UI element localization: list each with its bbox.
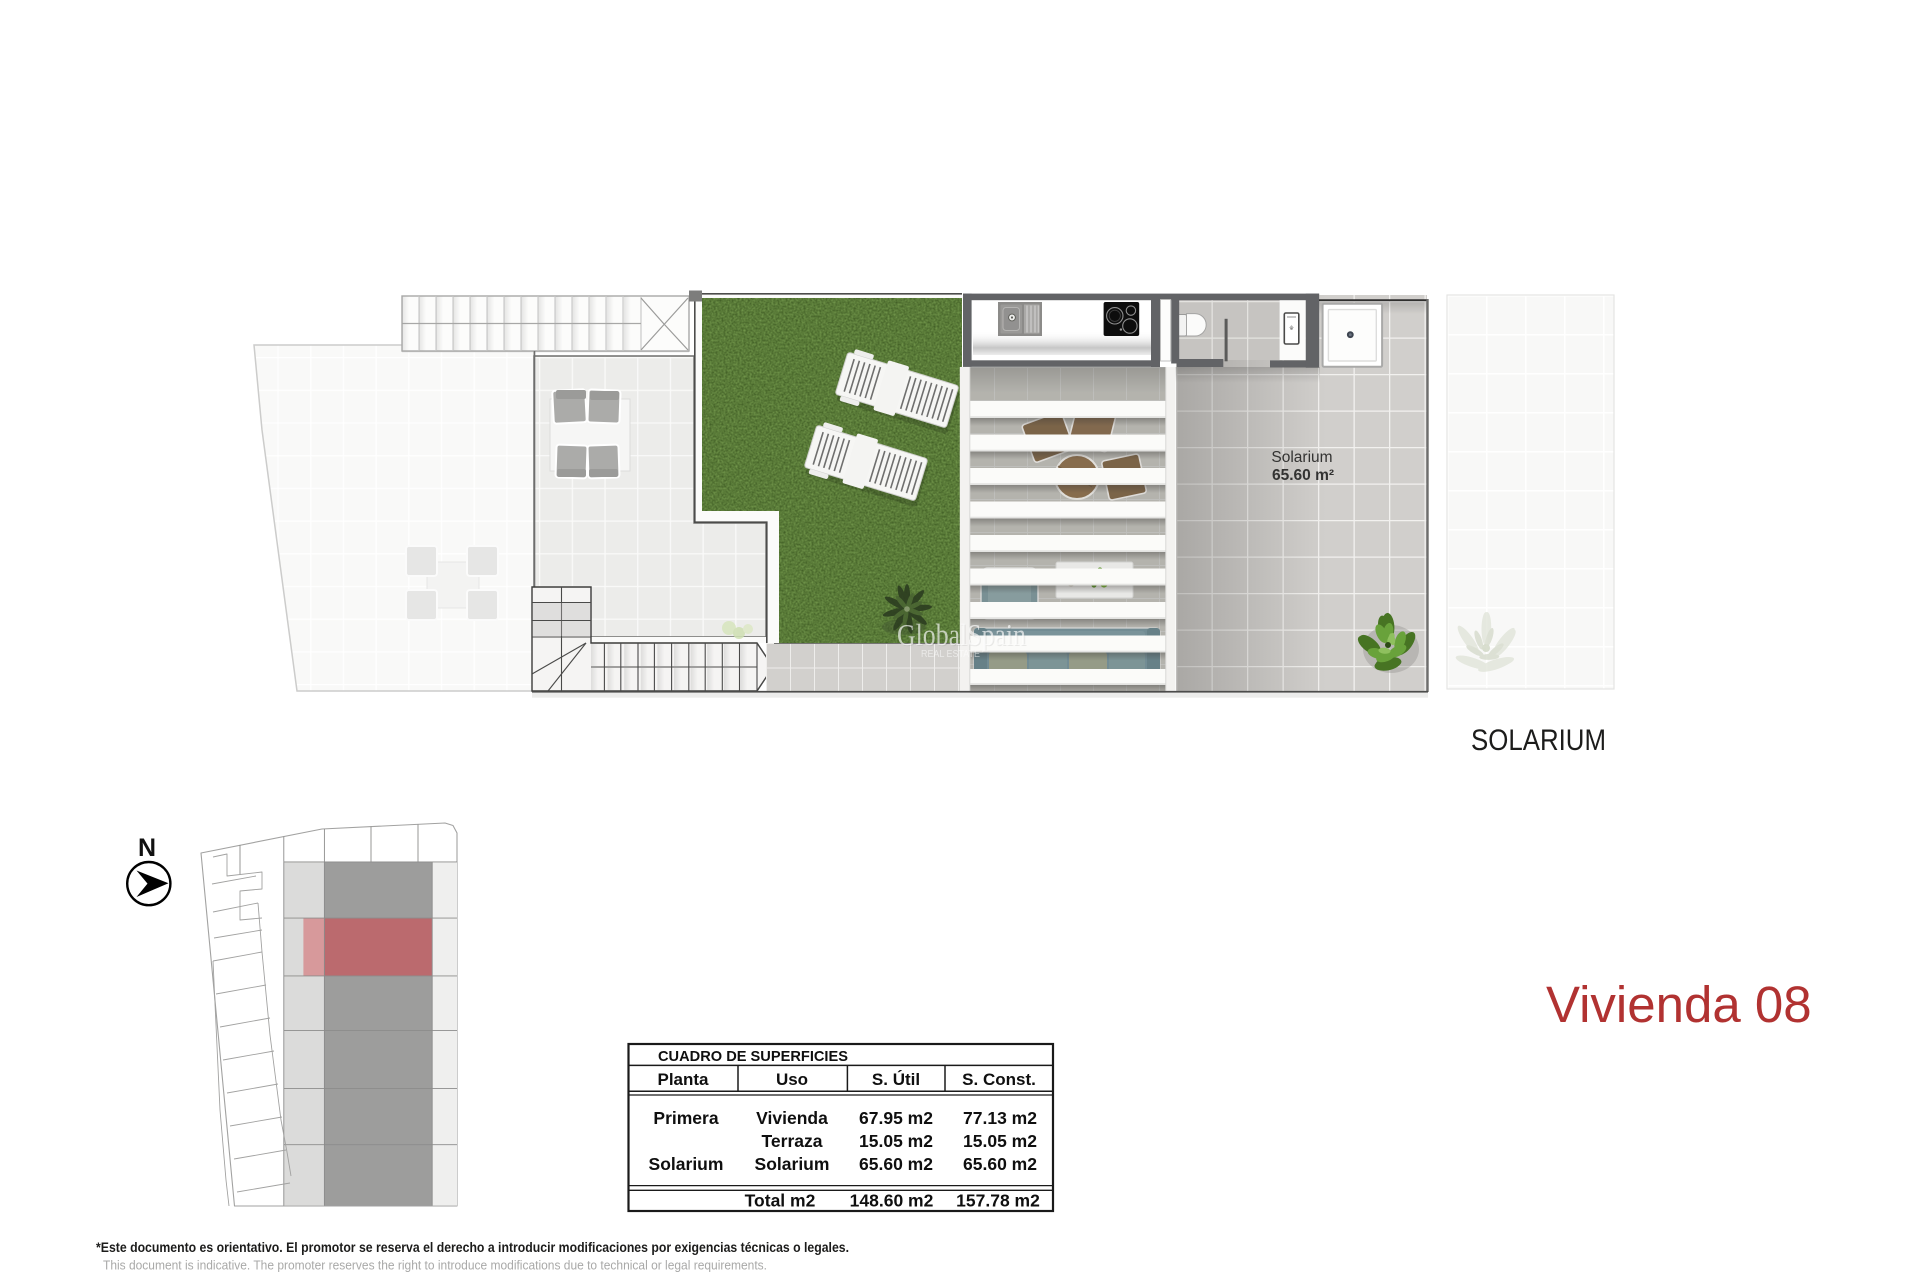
- svg-text:S. Const.: S. Const.: [962, 1070, 1036, 1089]
- svg-text:SOLARIUM: SOLARIUM: [1471, 724, 1606, 757]
- svg-text:*Este documento es orientativo: *Este documento es orientativo. El promo…: [96, 1239, 849, 1255]
- svg-text:77.13 m2: 77.13 m2: [963, 1108, 1037, 1128]
- svg-text:GlobalSpain: GlobalSpain: [897, 617, 1026, 652]
- svg-text:Vivienda 08: Vivienda 08: [1546, 976, 1812, 1033]
- svg-text:This document is indicative. T: This document is indicative. The promote…: [103, 1258, 767, 1273]
- svg-text:N: N: [138, 834, 156, 862]
- svg-text:S. Útil: S. Útil: [872, 1070, 920, 1089]
- svg-text:65.60 m2: 65.60 m2: [859, 1154, 933, 1174]
- svg-text:CUADRO DE SUPERFICIES: CUADRO DE SUPERFICIES: [658, 1048, 848, 1065]
- svg-text:Solarium: Solarium: [649, 1154, 724, 1174]
- svg-text:65.60 m²: 65.60 m²: [1272, 467, 1334, 484]
- svg-text:157.78 m2: 157.78 m2: [956, 1191, 1040, 1211]
- svg-text:REAL ESTATE: REAL ESTATE: [921, 649, 980, 660]
- svg-text:65.60 m2: 65.60 m2: [963, 1154, 1037, 1174]
- svg-text:Total m2: Total m2: [745, 1191, 816, 1211]
- svg-text:Primera: Primera: [653, 1108, 718, 1128]
- svg-text:67.95 m2: 67.95 m2: [859, 1108, 933, 1128]
- svg-text:Terraza: Terraza: [762, 1131, 823, 1151]
- svg-text:Planta: Planta: [657, 1070, 709, 1089]
- svg-text:Vivienda: Vivienda: [756, 1108, 828, 1128]
- svg-text:15.05 m2: 15.05 m2: [859, 1131, 933, 1151]
- svg-text:Uso: Uso: [776, 1070, 808, 1089]
- svg-text:Solarium: Solarium: [1271, 449, 1332, 466]
- svg-text:Solarium: Solarium: [755, 1154, 830, 1174]
- svg-text:15.05 m2: 15.05 m2: [963, 1131, 1037, 1151]
- svg-text:148.60 m2: 148.60 m2: [850, 1191, 934, 1211]
